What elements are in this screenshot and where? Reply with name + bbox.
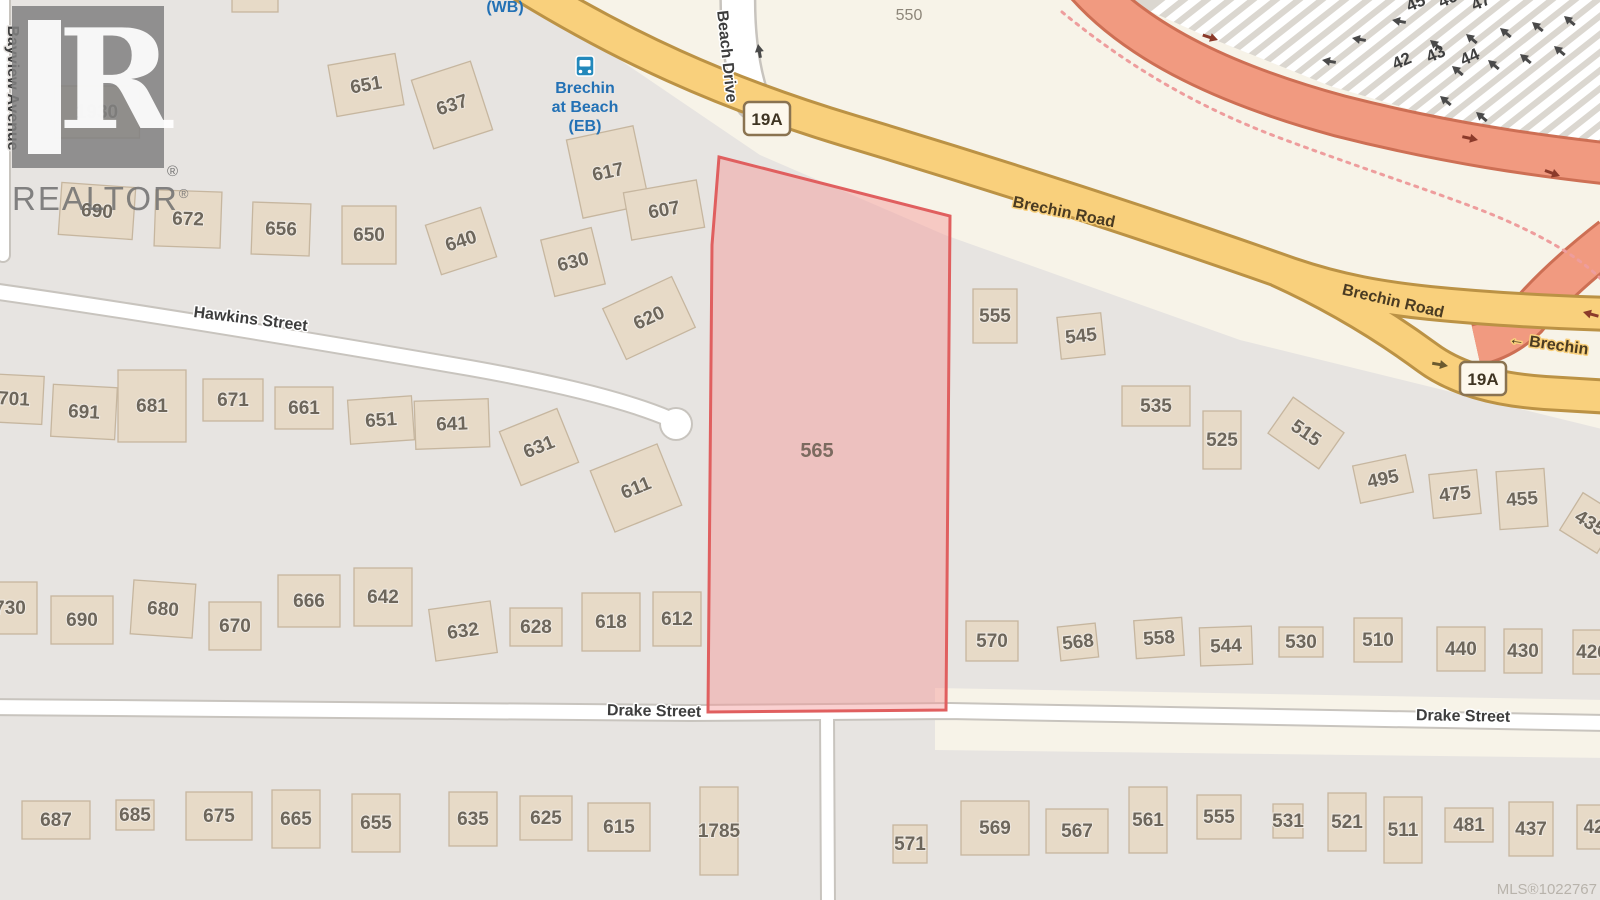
building: 670 bbox=[209, 602, 261, 650]
listing-map-image: 4243444546471930651637617607690672656650… bbox=[0, 0, 1600, 900]
building bbox=[232, 0, 278, 12]
house-number: 440 bbox=[1445, 639, 1477, 660]
house-number: 545 bbox=[1064, 324, 1098, 348]
house-number: 615 bbox=[603, 817, 635, 838]
building: 661 bbox=[275, 387, 333, 429]
building: 691 bbox=[51, 384, 118, 439]
bus-stop-icon bbox=[576, 56, 594, 76]
mls-number: MLS®1022767 bbox=[1497, 881, 1597, 898]
house-number: 661 bbox=[288, 398, 320, 419]
highlighted-parcel bbox=[708, 157, 950, 712]
building: 567 bbox=[1046, 809, 1108, 853]
house-number: 544 bbox=[1210, 635, 1243, 657]
building: 672 bbox=[154, 190, 222, 248]
building: 531 bbox=[1272, 804, 1304, 838]
house-number: 656 bbox=[265, 218, 297, 240]
building: 481 bbox=[1445, 808, 1493, 842]
building: 426 bbox=[1573, 630, 1600, 674]
building: 561 bbox=[1129, 787, 1167, 853]
house-number: 531 bbox=[1272, 811, 1304, 832]
house-number: 568 bbox=[1061, 630, 1095, 654]
area-label: 550 bbox=[896, 7, 923, 24]
building: 675 bbox=[186, 792, 252, 840]
building: 555 bbox=[973, 289, 1017, 343]
building: 665 bbox=[272, 790, 320, 848]
house-number: 569 bbox=[979, 818, 1011, 839]
transit-stop-label-wb: (WB) bbox=[486, 0, 523, 16]
house-number: 535 bbox=[1140, 396, 1172, 417]
house-number: 1930 bbox=[76, 102, 118, 123]
house-number: 525 bbox=[1206, 430, 1238, 451]
building: 1930 bbox=[55, 86, 140, 138]
house-number: 691 bbox=[68, 401, 101, 424]
building: 612 bbox=[653, 592, 701, 646]
house-number: 475 bbox=[1438, 482, 1472, 506]
building: 628 bbox=[510, 608, 562, 646]
house-number: 651 bbox=[364, 409, 398, 432]
house-number: 455 bbox=[1505, 488, 1539, 511]
house-number: 628 bbox=[520, 617, 552, 638]
building: 475 bbox=[1429, 470, 1481, 519]
house-number: 690 bbox=[66, 610, 98, 631]
building: 681 bbox=[118, 370, 186, 442]
map-canvas: 4243444546471930651637617607690672656650… bbox=[0, 0, 1600, 900]
transit-stop-label: Brechin bbox=[555, 80, 615, 97]
building: 440 bbox=[1437, 627, 1485, 671]
house-number: 701 bbox=[0, 388, 31, 411]
house-number: 437 bbox=[1515, 819, 1547, 840]
building: 642 bbox=[354, 568, 412, 626]
house-number: 685 bbox=[119, 805, 151, 826]
house-number: 672 bbox=[172, 208, 204, 230]
house-number: 430 bbox=[1507, 641, 1539, 662]
building: 656 bbox=[251, 202, 311, 256]
building: 650 bbox=[342, 206, 396, 264]
building: 510 bbox=[1354, 618, 1402, 662]
cul-de-sac bbox=[661, 409, 691, 439]
building: 666 bbox=[278, 575, 340, 627]
building: 568 bbox=[1057, 623, 1098, 661]
building: 615 bbox=[588, 803, 650, 851]
building: 525 bbox=[1203, 411, 1241, 469]
building: 530 bbox=[1279, 627, 1323, 657]
building: 730 bbox=[0, 582, 37, 634]
building: 1785 bbox=[698, 787, 741, 875]
street-label: Bayview Avenue bbox=[4, 25, 21, 150]
building: 571 bbox=[893, 825, 927, 863]
house-number: 530 bbox=[1285, 632, 1317, 653]
house-number: 426 bbox=[1576, 642, 1600, 663]
house-number: 625 bbox=[530, 808, 562, 829]
house-number: 612 bbox=[661, 609, 693, 630]
house-number: 510 bbox=[1362, 630, 1394, 651]
house-number: 1785 bbox=[698, 821, 741, 842]
highway-shield-19A: 19A bbox=[744, 102, 790, 135]
parcel-number: 565 bbox=[800, 440, 833, 462]
building: 687 bbox=[22, 801, 90, 839]
house-number: 635 bbox=[457, 809, 489, 830]
building: 42 bbox=[1577, 805, 1600, 849]
building: 618 bbox=[582, 593, 640, 651]
house-number: 555 bbox=[1203, 807, 1235, 828]
house-number: 681 bbox=[136, 396, 168, 417]
house-number: 558 bbox=[1142, 627, 1175, 650]
house-number: 618 bbox=[595, 612, 627, 633]
building-footprint bbox=[232, 0, 278, 12]
house-number: 671 bbox=[217, 390, 249, 411]
house-number: 650 bbox=[353, 225, 385, 246]
building: 625 bbox=[520, 796, 572, 840]
building: 570 bbox=[966, 621, 1018, 661]
house-number: 641 bbox=[436, 413, 469, 435]
house-number: 481 bbox=[1453, 815, 1485, 836]
house-number: 511 bbox=[1388, 820, 1419, 841]
building: 651 bbox=[328, 53, 404, 116]
building: 685 bbox=[116, 800, 154, 830]
house-number: 680 bbox=[146, 598, 179, 621]
house-number: 687 bbox=[40, 810, 72, 831]
house-number: 567 bbox=[1061, 821, 1093, 842]
building: 569 bbox=[961, 801, 1029, 855]
drake-side-street bbox=[827, 714, 828, 900]
house-number: 42 bbox=[1583, 817, 1600, 838]
svg-text:19A: 19A bbox=[751, 110, 782, 129]
street-label: Drake Street bbox=[1416, 707, 1511, 726]
house-number: 561 bbox=[1132, 810, 1164, 831]
house-number: 521 bbox=[1331, 812, 1363, 833]
house-number: 665 bbox=[280, 809, 312, 830]
building: 635 bbox=[449, 792, 497, 846]
house-number: 642 bbox=[367, 587, 399, 608]
transit-stop-label: at Beach bbox=[552, 99, 619, 116]
building: 437 bbox=[1509, 802, 1553, 856]
svg-text:19A: 19A bbox=[1467, 370, 1498, 389]
building: 455 bbox=[1496, 468, 1548, 529]
building: 671 bbox=[203, 379, 263, 421]
building: 430 bbox=[1504, 629, 1542, 673]
street-label: Drake Street bbox=[607, 702, 702, 721]
transit-stop-label: (EB) bbox=[569, 118, 602, 135]
house-number: 632 bbox=[446, 619, 480, 644]
house-number: 666 bbox=[293, 591, 325, 612]
building: 680 bbox=[130, 580, 196, 638]
house-number: 670 bbox=[219, 616, 251, 637]
building: 651 bbox=[348, 396, 415, 444]
house-number: 675 bbox=[203, 806, 235, 827]
building: 511 bbox=[1384, 797, 1422, 863]
building: 632 bbox=[429, 601, 498, 661]
house-number: 571 bbox=[894, 834, 926, 855]
building: 558 bbox=[1134, 617, 1185, 658]
building: 521 bbox=[1328, 793, 1366, 851]
building: 641 bbox=[414, 399, 490, 450]
house-number: 690 bbox=[80, 200, 113, 223]
highway-shield-19A: 19A bbox=[1460, 362, 1506, 395]
building: 555 bbox=[1197, 795, 1241, 839]
house-number: 570 bbox=[976, 631, 1008, 652]
building: 535 bbox=[1122, 386, 1190, 426]
house-number: 655 bbox=[360, 813, 392, 834]
house-number: 730 bbox=[0, 598, 26, 619]
building: 690 bbox=[58, 182, 135, 239]
building: 701 bbox=[0, 374, 44, 425]
building: 544 bbox=[1199, 626, 1252, 666]
building: 655 bbox=[352, 794, 400, 852]
building: 690 bbox=[51, 596, 113, 644]
house-number: 555 bbox=[979, 306, 1011, 327]
building: 545 bbox=[1057, 313, 1105, 359]
